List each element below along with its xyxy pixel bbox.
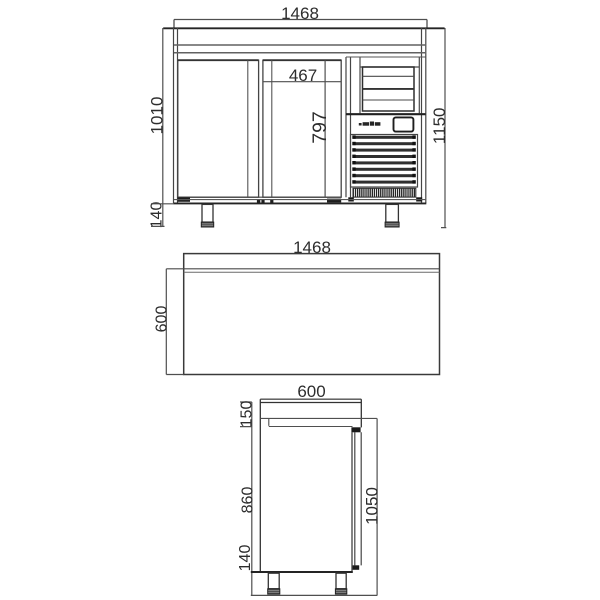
svg-text:600: 600 xyxy=(154,306,171,333)
svg-text:1050: 1050 xyxy=(363,487,382,525)
svg-text:150: 150 xyxy=(239,401,256,428)
svg-text:600: 600 xyxy=(297,382,325,401)
svg-text:1010: 1010 xyxy=(147,97,166,135)
svg-text:467: 467 xyxy=(289,66,317,85)
svg-text:860: 860 xyxy=(240,487,257,514)
svg-text:140: 140 xyxy=(237,545,254,572)
svg-text:797: 797 xyxy=(309,111,331,144)
svg-text:140: 140 xyxy=(148,202,165,229)
svg-text:1150: 1150 xyxy=(430,108,449,145)
